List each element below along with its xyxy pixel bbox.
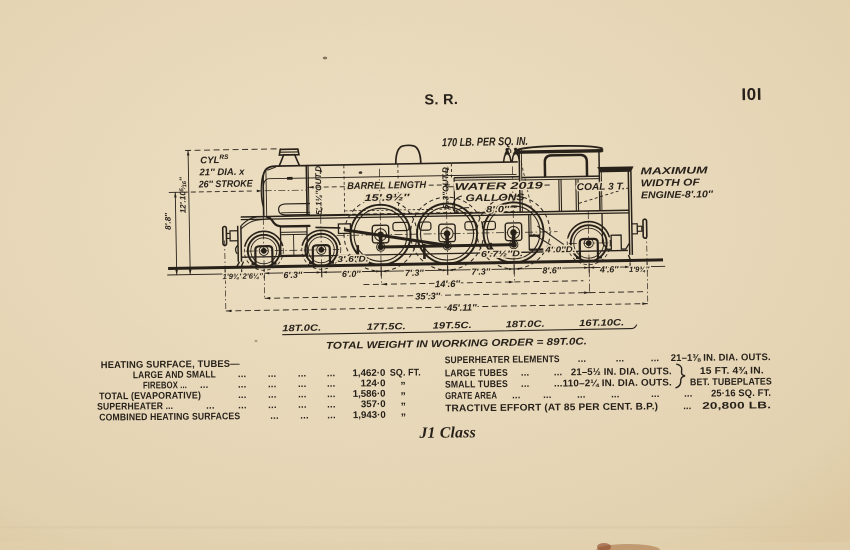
svg-text:TRACTIVE EFFORT (AT 85 PER CEN: TRACTIVE EFFORT (AT 85 PER CENT. B.P.) <box>445 401 658 414</box>
svg-text:...: ... <box>521 379 530 390</box>
svg-text:25·16 SQ. FT.: 25·16 SQ. FT. <box>711 388 771 400</box>
svg-text:...: ... <box>577 390 586 401</box>
svg-text:2′6¼″: 2′6¼″ <box>242 271 264 280</box>
svg-text:...: ... <box>684 389 693 400</box>
svg-text:GRATE AREA: GRATE AREA <box>445 391 497 402</box>
svg-text:7′.3″: 7′.3″ <box>471 266 491 276</box>
svg-text:15 FT. 4¾ IN.: 15 FT. 4¾ IN. <box>700 365 764 377</box>
svg-text:21–5½ IN. DIA. OUTS.: 21–5½ IN. DIA. OUTS. <box>571 366 672 378</box>
svg-text:5′.1¼″OUT.D: 5′.1¼″OUT.D <box>314 166 324 215</box>
svg-text:170 LB. PER SQ. IN.: 170 LB. PER SQ. IN. <box>442 136 528 149</box>
svg-text:6′.3″: 6′.3″ <box>283 270 303 280</box>
svg-text:...: ... <box>512 390 521 401</box>
svg-text:35′.3″: 35′.3″ <box>415 290 441 301</box>
svg-text:17T.5C.: 17T.5C. <box>367 321 406 332</box>
svg-text:1,943·0: 1,943·0 <box>353 410 386 421</box>
svg-text:MAXIMUM: MAXIMUM <box>640 165 708 177</box>
svg-text:...: ... <box>238 400 247 411</box>
svg-text:...: ... <box>298 400 307 411</box>
svg-text:...: ... <box>327 368 336 379</box>
svg-text:19T.5C.: 19T.5C. <box>433 320 472 331</box>
svg-text:...: ... <box>651 353 660 364</box>
svg-text:...: ... <box>268 379 277 390</box>
svg-text:...: ... <box>238 380 247 391</box>
svg-text:S. R.: S. R. <box>424 92 458 109</box>
svg-text:...: ... <box>238 369 247 380</box>
svg-text:1′9¾″: 1′9¾″ <box>223 272 244 281</box>
svg-text:7′.3″: 7′.3″ <box>405 268 425 278</box>
svg-text:18T.0C.: 18T.0C. <box>282 323 321 334</box>
svg-text:...: ... <box>521 368 530 379</box>
svg-text:1′9¾″: 1′9¾″ <box>629 265 650 274</box>
svg-text:...: ... <box>206 401 215 412</box>
svg-text:ENGINE-8′.10″: ENGINE-8′.10″ <box>641 189 715 201</box>
svg-text:SUPERHEATER ELEMENTS: SUPERHEATER ELEMENTS <box>445 354 560 366</box>
svg-text:21″ DIA. x: 21″ DIA. x <box>198 167 245 179</box>
svg-text:...: ... <box>300 411 309 422</box>
svg-text:8′.0″: 8′.0″ <box>486 204 510 214</box>
svg-text:...110–2¼ IN. DIA. OUTS.: ...110–2¼ IN. DIA. OUTS. <box>554 377 672 389</box>
svg-text:„: „ <box>401 406 406 418</box>
svg-text:21–1⅜ IN. DIA. OUTS.: 21–1⅜ IN. DIA. OUTS. <box>671 352 771 364</box>
svg-text:3′.6″D.: 3′.6″D. <box>337 253 368 264</box>
svg-text:I0I: I0I <box>741 85 762 104</box>
svg-text:...: ... <box>578 354 587 365</box>
svg-text:COMBINED HEATING SURFACES: COMBINED HEATING SURFACES <box>99 411 240 423</box>
svg-text:20,800 LB.: 20,800 LB. <box>702 400 771 412</box>
svg-text:WIDTH OF: WIDTH OF <box>641 177 701 189</box>
svg-text:45′.11″: 45′.11″ <box>446 301 477 313</box>
svg-text:12′.105⁄16″: 12′.105⁄16″ <box>178 176 189 213</box>
svg-text:6′.0″: 6′.0″ <box>342 269 362 279</box>
svg-text:COAL 3 T.: COAL 3 T. <box>577 181 625 193</box>
svg-text:WATER 2019: WATER 2019 <box>455 180 544 193</box>
svg-text:...: ... <box>543 390 552 401</box>
svg-text:357·0: 357·0 <box>361 399 386 410</box>
svg-text:...: ... <box>554 367 563 378</box>
svg-text:...: ... <box>268 369 277 380</box>
svg-text:BARREL LENGTH: BARREL LENGTH <box>347 180 427 192</box>
svg-text:...: ... <box>298 379 307 390</box>
svg-text:14′.6″: 14′.6″ <box>435 278 461 289</box>
svg-text:15′.9½″: 15′.9½″ <box>364 192 410 204</box>
svg-text:8′.8″: 8′.8″ <box>163 212 172 230</box>
svg-text:BET. TUBEPLATES: BET. TUBEPLATES <box>690 376 772 388</box>
svg-text:GALLONS: GALLONS <box>465 192 525 204</box>
svg-text:...: ... <box>200 380 209 391</box>
svg-text:18T.0C.: 18T.0C. <box>506 319 545 330</box>
svg-text:...: ... <box>611 389 620 400</box>
svg-text:...: ... <box>298 369 307 380</box>
svg-text:4′.6″: 4′.6″ <box>599 264 620 274</box>
svg-text:5′.3″OUT.D: 5′.3″OUT.D <box>441 167 451 209</box>
svg-text:...: ... <box>651 389 660 400</box>
svg-text:26″ STROKE: 26″ STROKE <box>198 178 254 190</box>
svg-text:6′.7½″D.: 6′.7½″D. <box>481 248 523 259</box>
svg-text:...: ... <box>327 379 336 390</box>
svg-text:J1 Class: J1 Class <box>418 424 476 442</box>
svg-text:...: ... <box>268 400 277 411</box>
svg-text:...: ... <box>327 410 336 421</box>
svg-text:...: ... <box>270 411 279 422</box>
svg-text:...: ... <box>616 353 625 364</box>
svg-text:8′.6″: 8′.6″ <box>542 265 562 275</box>
svg-text:LARGE TUBES: LARGE TUBES <box>445 368 508 380</box>
svg-text:SMALL TUBES: SMALL TUBES <box>445 379 508 391</box>
svg-text:4′.0″D.: 4′.0″D. <box>544 244 575 255</box>
svg-text:...: ... <box>327 399 336 410</box>
svg-text:...: ... <box>683 401 691 412</box>
svg-text:16T.10C.: 16T.10C. <box>579 317 624 328</box>
